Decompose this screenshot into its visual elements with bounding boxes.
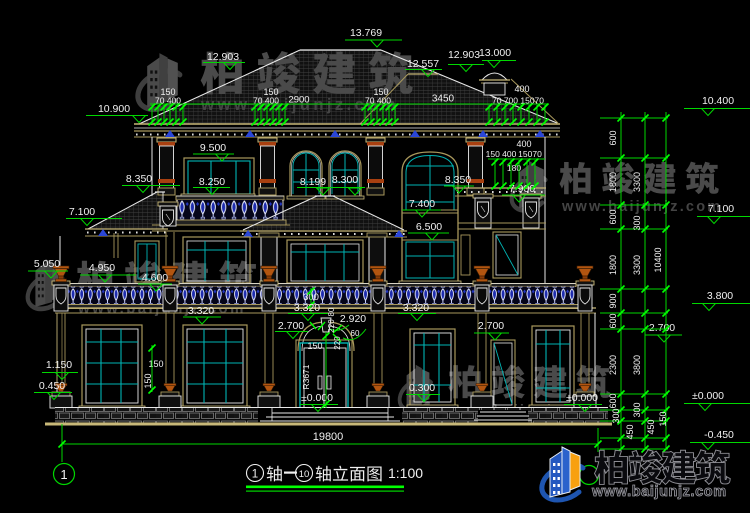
svg-text:5.050: 5.050 (34, 258, 60, 270)
svg-text:1800: 1800 (608, 172, 618, 192)
svg-text:300: 300 (632, 402, 642, 417)
svg-text:R3671: R3671 (301, 364, 311, 389)
svg-text:3300: 3300 (632, 255, 642, 275)
svg-text:60: 60 (351, 329, 360, 338)
svg-text:9.500: 9.500 (200, 142, 226, 154)
svg-text:600: 600 (608, 130, 618, 145)
svg-text:900: 900 (608, 293, 618, 308)
svg-text:2300: 2300 (608, 355, 618, 375)
svg-text:300: 300 (611, 408, 621, 423)
svg-text:220: 220 (327, 319, 336, 333)
svg-text:www.baijunjz.com: www.baijunjz.com (561, 199, 722, 215)
svg-text:0.450: 0.450 (39, 380, 65, 392)
svg-text:13.769: 13.769 (350, 27, 382, 39)
svg-text:3800: 3800 (632, 355, 642, 375)
svg-text:8.300: 8.300 (332, 174, 358, 186)
svg-text:3.320: 3.320 (188, 305, 214, 317)
svg-text:10: 10 (299, 469, 310, 480)
svg-text:2.920: 2.920 (340, 313, 366, 325)
svg-text:6.500: 6.500 (416, 221, 442, 233)
svg-text:600: 600 (608, 393, 618, 408)
svg-text:7.100: 7.100 (69, 206, 95, 218)
svg-text:www.baijunjz.com: www.baijunjz.com (591, 484, 727, 500)
svg-text:-0.450: -0.450 (704, 429, 734, 441)
svg-text:2.700: 2.700 (278, 320, 304, 332)
svg-text:7.100: 7.100 (708, 203, 734, 215)
svg-text:4.950: 4.950 (89, 262, 115, 274)
svg-text:300: 300 (632, 215, 642, 230)
svg-text:150: 150 (307, 341, 322, 351)
svg-text:8.350: 8.350 (126, 173, 152, 185)
svg-text:450: 450 (646, 419, 656, 434)
svg-text:2.700: 2.700 (649, 322, 675, 334)
svg-text:12.903: 12.903 (448, 49, 480, 61)
svg-text:19800: 19800 (313, 431, 344, 443)
svg-text:10.900: 10.900 (98, 103, 130, 115)
svg-text:13.000: 13.000 (479, 47, 511, 59)
svg-text:70 400: 70 400 (155, 96, 181, 106)
svg-text:1800: 1800 (608, 255, 618, 275)
svg-text:12.903: 12.903 (207, 51, 239, 63)
svg-text:3450: 3450 (432, 94, 455, 105)
svg-text:80: 80 (327, 307, 336, 316)
svg-text:220: 220 (333, 336, 342, 350)
svg-text:10400: 10400 (653, 247, 663, 272)
svg-text:3300: 3300 (632, 172, 642, 192)
svg-text:150 400: 150 400 (486, 149, 517, 159)
svg-text:400: 400 (516, 139, 531, 149)
svg-text:±0.000: ±0.000 (566, 392, 598, 404)
svg-text:3.800: 3.800 (707, 290, 733, 302)
svg-text:2.700: 2.700 (478, 320, 504, 332)
svg-text:3.320: 3.320 (403, 302, 429, 314)
svg-text:7.400: 7.400 (409, 198, 435, 210)
svg-text:12.557: 12.557 (407, 58, 439, 70)
svg-text:600: 600 (608, 209, 618, 224)
svg-text:1: 1 (60, 467, 67, 482)
svg-text:150: 150 (148, 359, 163, 369)
svg-text:4.600: 4.600 (142, 272, 168, 284)
svg-text:0.300: 0.300 (409, 382, 435, 394)
svg-text:±0.000: ±0.000 (692, 390, 724, 402)
svg-text:1: 1 (252, 469, 258, 481)
svg-text:1:100: 1:100 (388, 465, 423, 481)
svg-text:400: 400 (514, 84, 529, 94)
svg-text:10.400: 10.400 (702, 95, 734, 107)
svg-text:8.250: 8.250 (199, 176, 225, 188)
svg-text:600: 600 (608, 313, 618, 328)
svg-text:15070: 15070 (518, 149, 542, 159)
svg-text:2900: 2900 (288, 95, 309, 106)
svg-text:3.320: 3.320 (294, 302, 320, 314)
svg-text:450: 450 (625, 424, 635, 439)
svg-text:8.199: 8.199 (300, 176, 326, 188)
svg-text:150: 150 (658, 411, 668, 426)
svg-text:8.350: 8.350 (445, 174, 471, 186)
svg-text:1.150: 1.150 (46, 359, 72, 371)
